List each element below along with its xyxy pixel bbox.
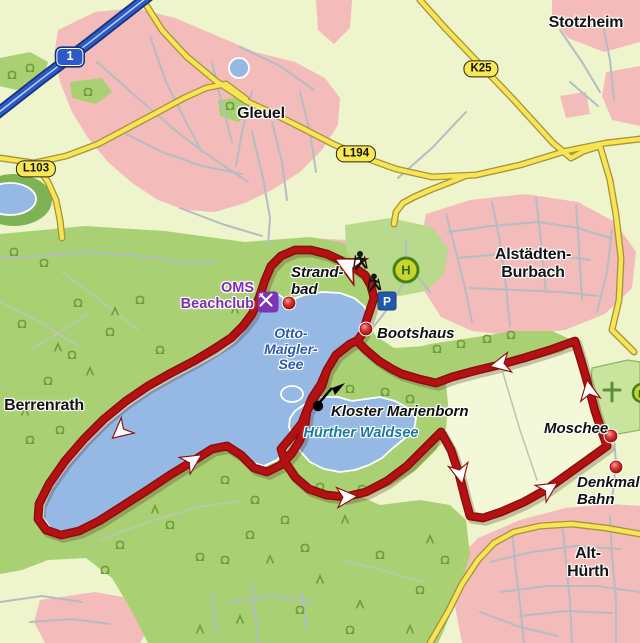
lake-label-otto-maigler-see: Otto- Maigler- See	[264, 326, 318, 373]
beachclub-label: OMS Beachclub	[181, 280, 254, 312]
town-label-stotzheim: Stotzheim	[549, 14, 624, 32]
road-shield-l194: L194	[336, 145, 376, 162]
bus-stop-icon: H	[393, 257, 420, 284]
parking-icon: P	[378, 292, 397, 311]
poi-label-strandbad: Strand- bad	[291, 265, 344, 299]
trail-map: H Gleuel Stotzheim Alstädten- Burbach Be…	[0, 0, 640, 643]
trail-map-svg: H	[0, 0, 640, 643]
lake-label-huerther-waldsee: Hürther Waldsee	[304, 425, 419, 441]
town-label-alstaedten-burbach: Alstädten- Burbach	[495, 246, 571, 282]
poi-label-denkmal-bahn: Denkmal- Bahn	[577, 475, 640, 509]
town-label-alt-huerth: Alt-Hürth	[562, 545, 614, 581]
motorway-shield-1: 1	[56, 48, 83, 66]
restaurant-icon	[258, 292, 279, 313]
bus-stop-edge-icon: H	[633, 384, 640, 402]
town-label-berrenrath: Berrenrath	[4, 397, 84, 415]
town-label-gleuel: Gleuel	[237, 105, 285, 123]
road-shield-l103: L103	[16, 160, 56, 177]
poi-label-moschee: Moschee	[544, 421, 608, 438]
road-shield-k25: K25	[463, 60, 498, 77]
poi-label-kloster-marienborn: Kloster Marienborn	[331, 404, 469, 421]
poi-label-bootshaus: Bootshaus	[377, 326, 455, 343]
cutlery-glyph	[258, 292, 275, 309]
